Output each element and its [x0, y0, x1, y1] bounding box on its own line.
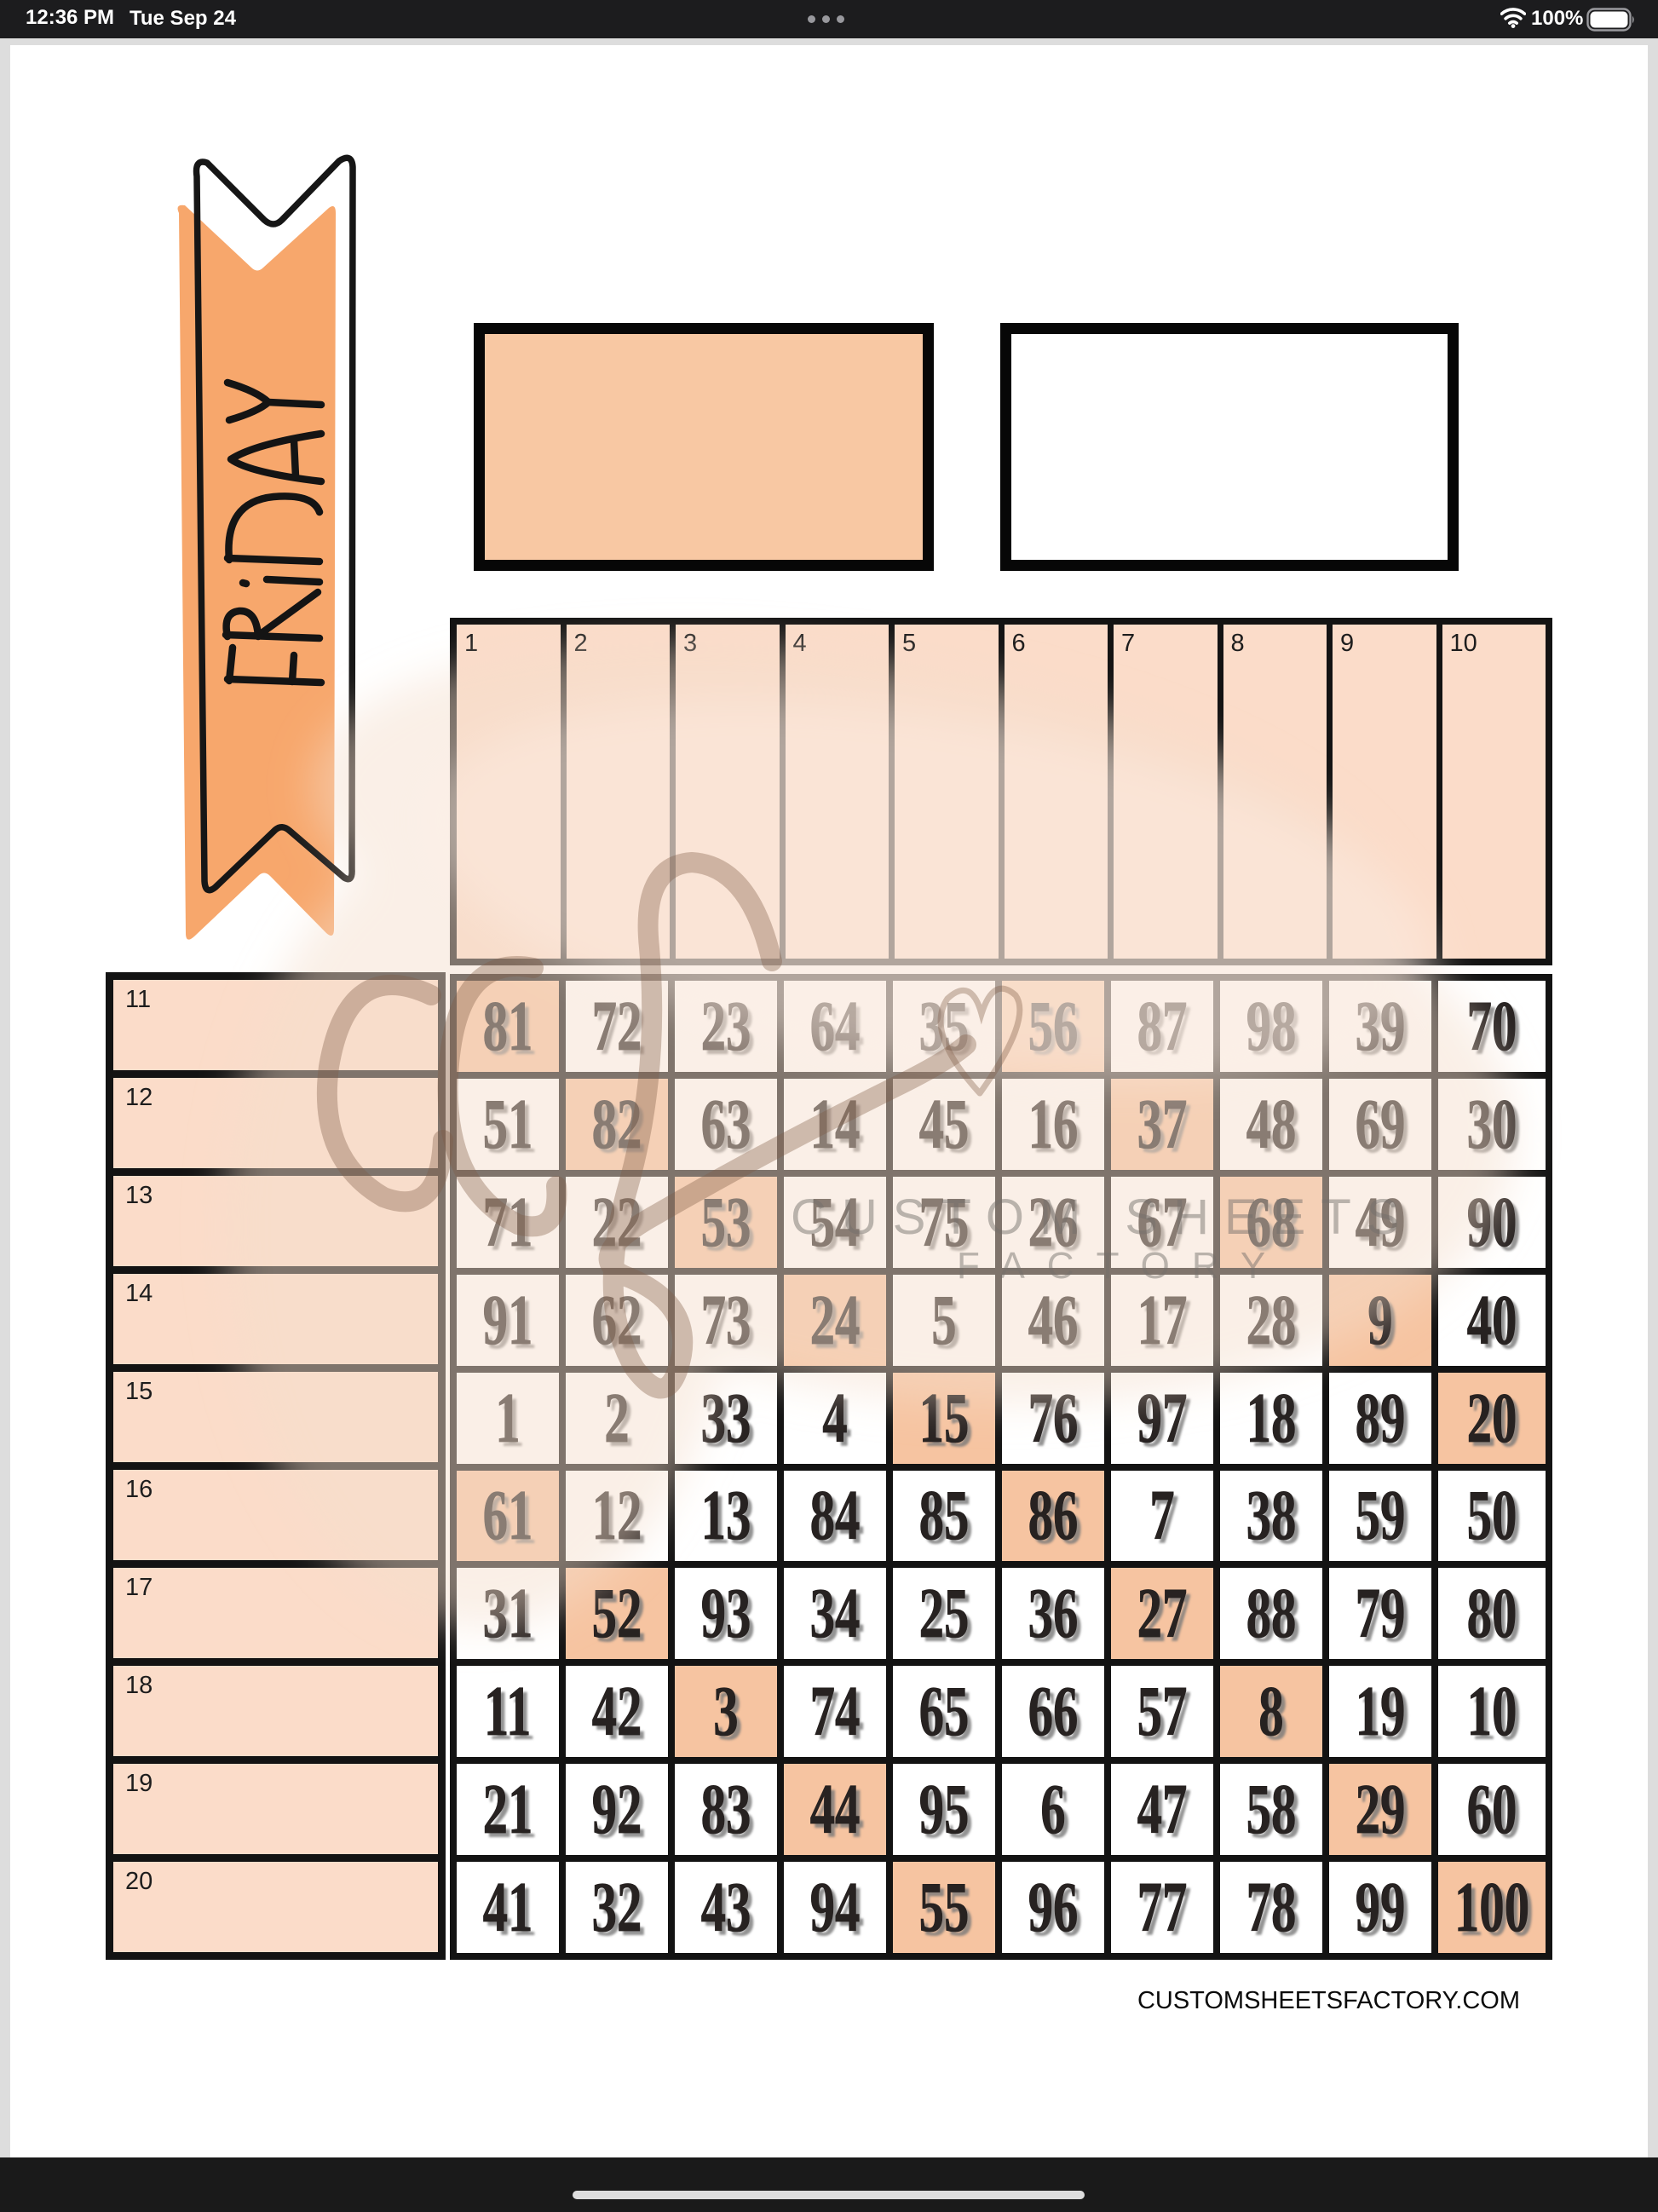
- svg-text:CUSTOM SHEETS: CUSTOM SHEETS: [791, 1190, 1414, 1245]
- svg-text:FACTORY: FACTORY: [957, 1245, 1287, 1287]
